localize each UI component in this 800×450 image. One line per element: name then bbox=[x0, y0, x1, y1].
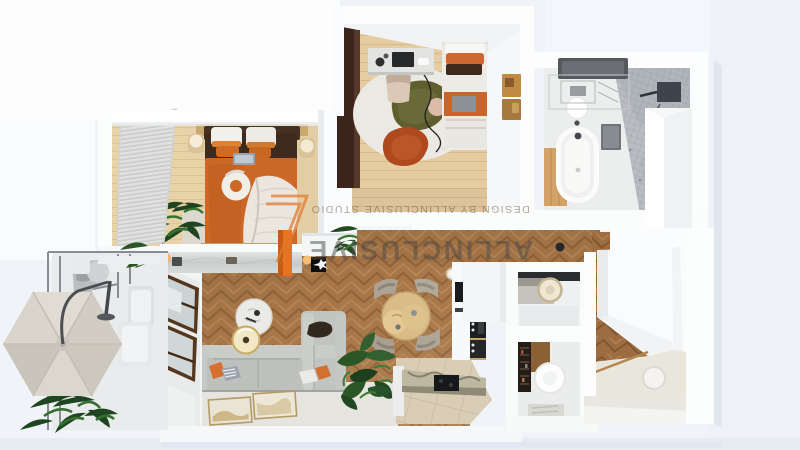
svg-text:ALLINCLUSIVE: ALLINCLUSIVE bbox=[307, 235, 534, 265]
svg-text:DESIGN BY ALLINCLUSIVE STUDIO: DESIGN BY ALLINCLUSIVE STUDIO bbox=[310, 203, 530, 215]
